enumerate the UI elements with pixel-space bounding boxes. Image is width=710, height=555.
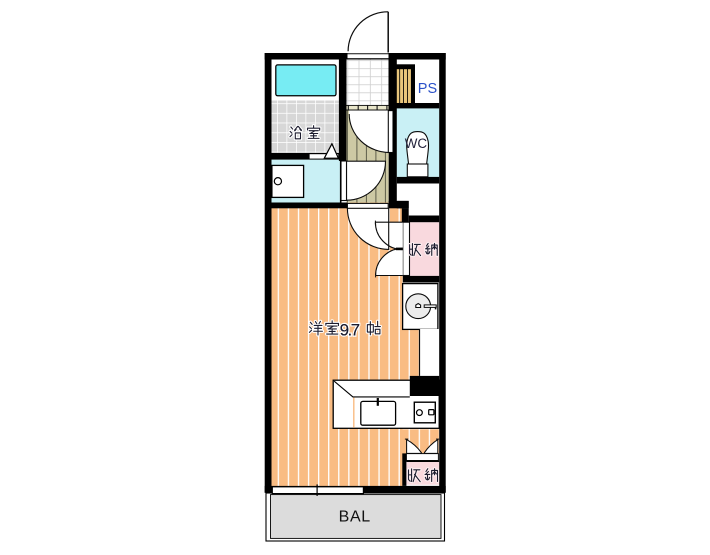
svg-text:BAL: BAL [339,509,371,526]
svg-text:9.7: 9.7 [340,320,360,339]
svg-text:PS: PS [418,81,437,97]
svg-text:WC: WC [405,136,428,151]
